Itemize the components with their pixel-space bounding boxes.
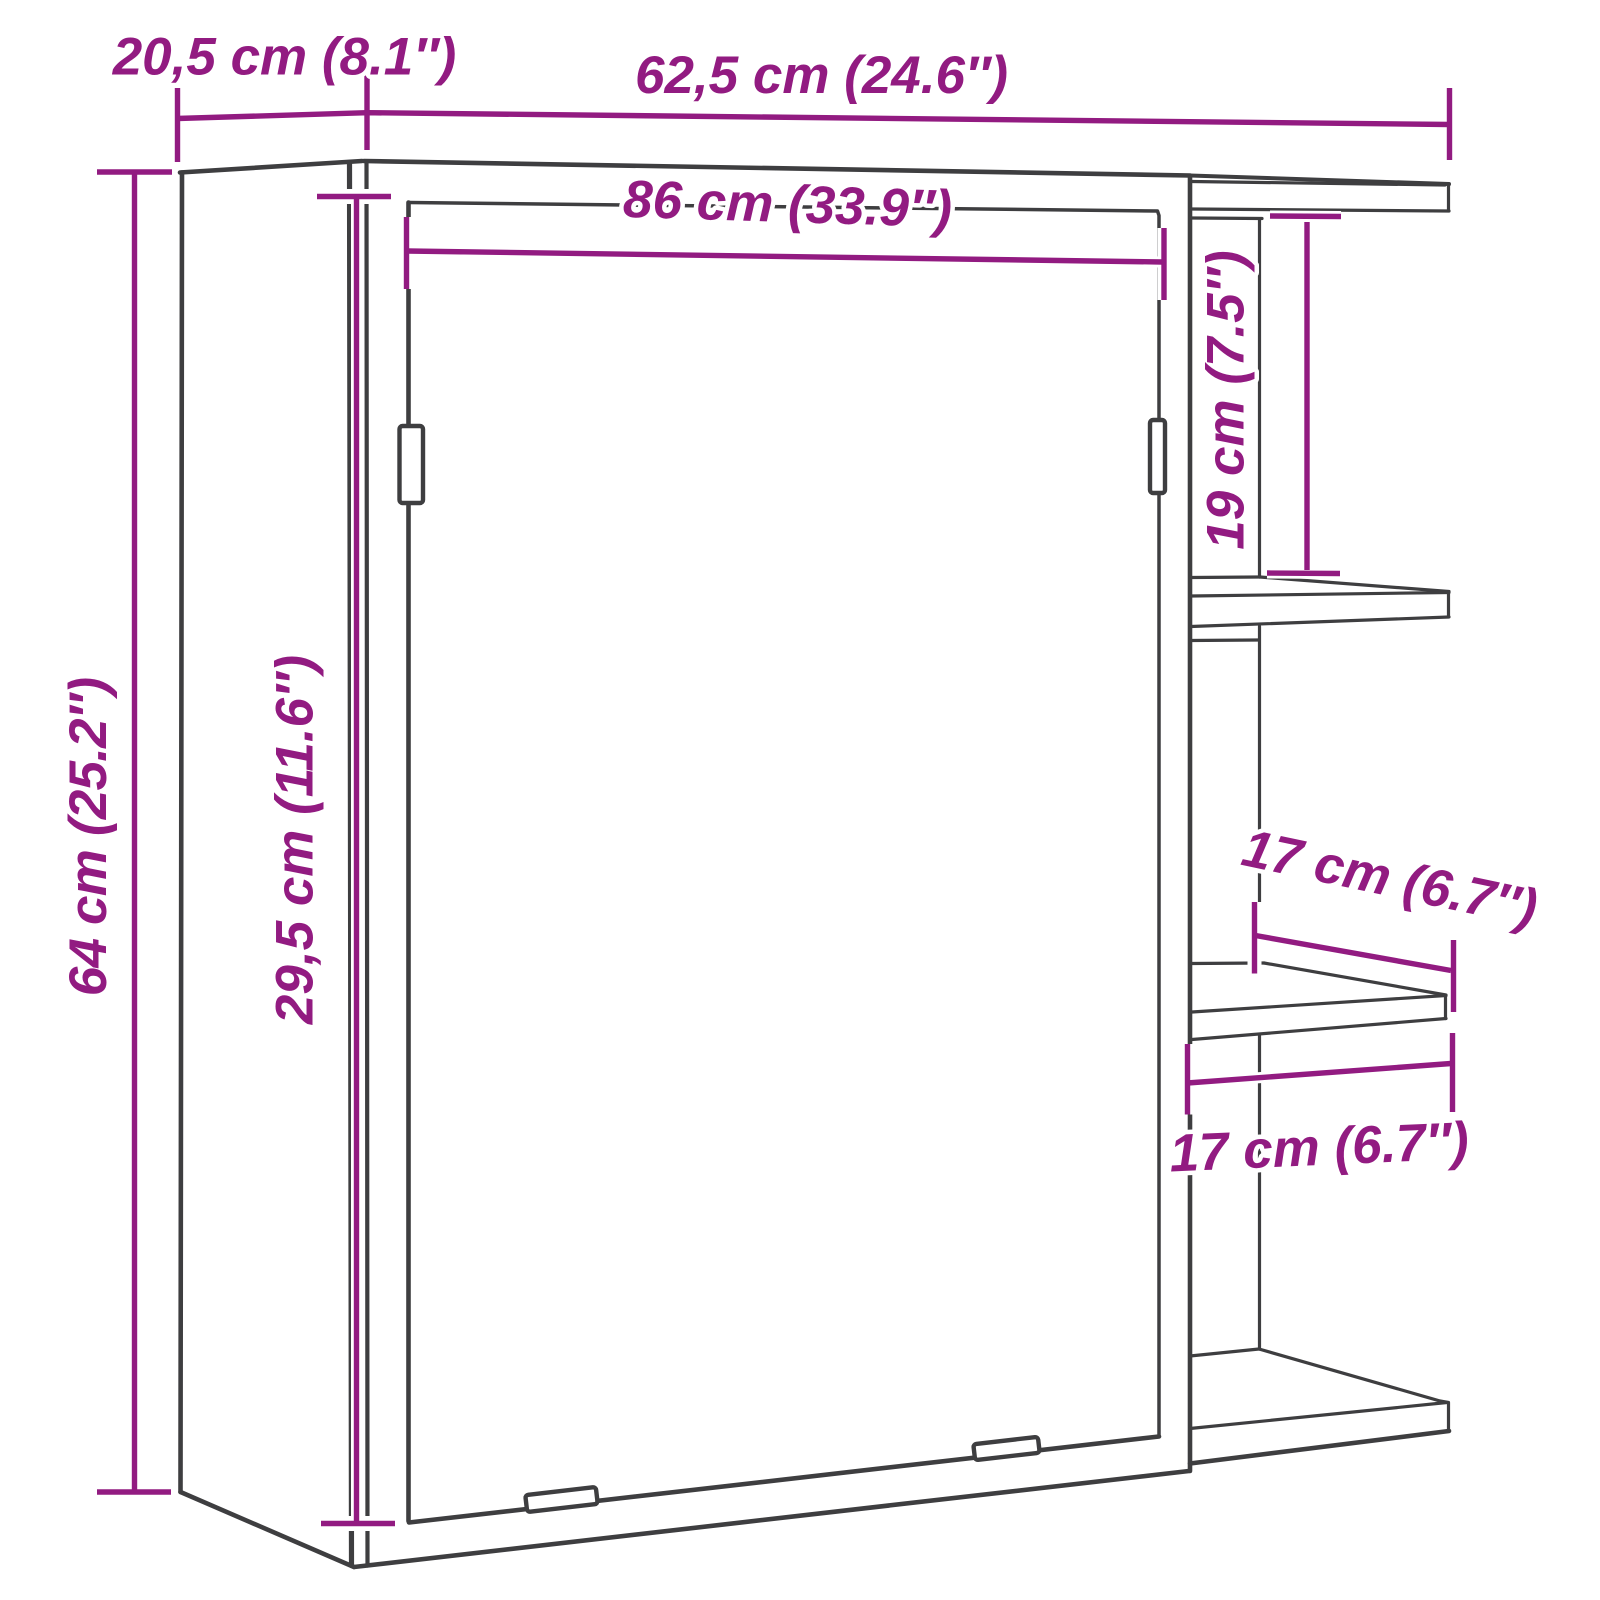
svg-text:20,5 cm (8.1″): 20,5 cm (8.1″) — [112, 28, 457, 87]
svg-text:29,5 cm (11.6″): 29,5 cm (11.6″) — [266, 655, 325, 1025]
svg-text:17 cm (6.7″): 17 cm (6.7″) — [1237, 818, 1542, 938]
svg-text:86 cm (33.9″): 86 cm (33.9″) — [622, 170, 953, 239]
svg-text:64 cm (25.2″): 64 cm (25.2″) — [59, 678, 118, 997]
svg-text:17 cm (6.7″): 17 cm (6.7″) — [1168, 1111, 1470, 1183]
svg-text:19 cm (7.5″): 19 cm (7.5″) — [1197, 250, 1256, 549]
svg-text:62,5 cm (24.6″): 62,5 cm (24.6″) — [635, 46, 1008, 105]
